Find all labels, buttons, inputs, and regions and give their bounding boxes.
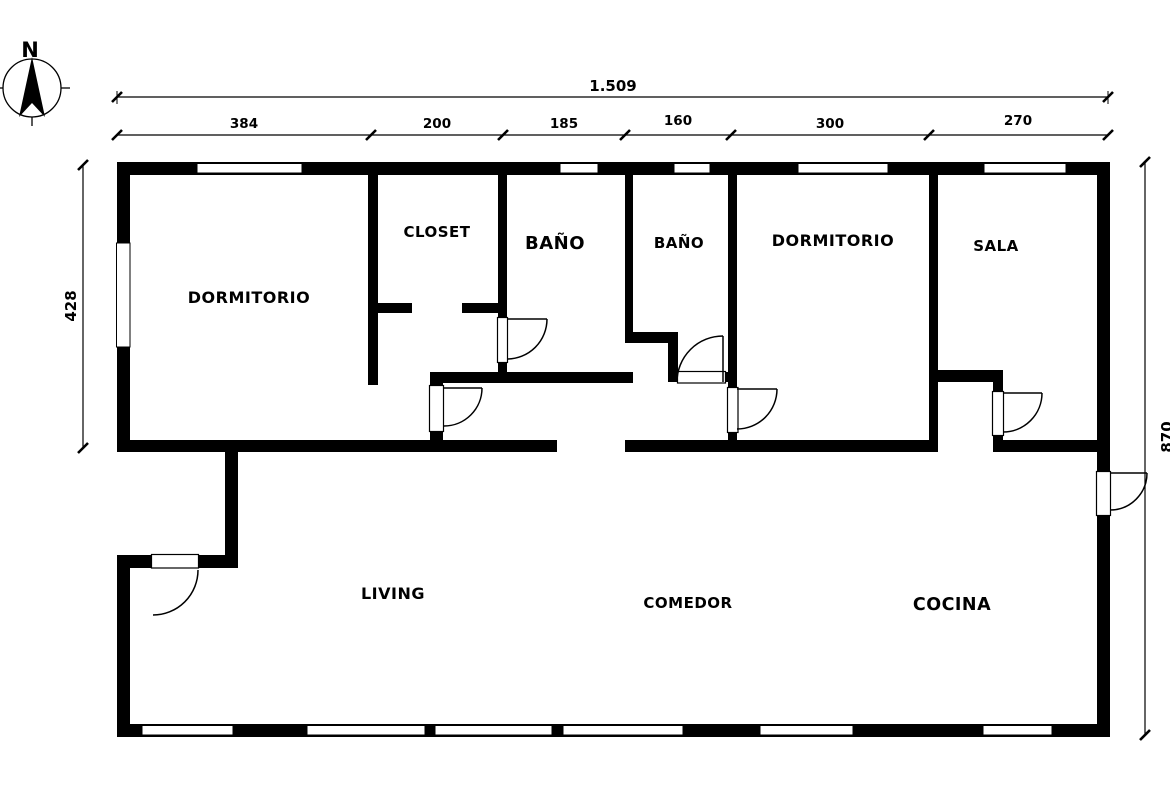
compass-north-indicator: N [0,38,70,126]
window-bottom-3 [435,726,552,736]
dim-left-height-label: 428 [62,290,80,321]
wall-row-divider-east [995,440,1110,452]
room-label-closet: CLOSET [403,223,470,241]
wall-closet-stub-west [368,303,412,313]
room-label-dormitorio-2: DORMITORIO [772,231,894,250]
front-door-leaf [152,555,199,569]
doors [152,318,1148,616]
wall-sala-partition-horizontal [929,370,1003,382]
bano2-door-opening [678,372,726,384]
hall-door-opening [430,386,444,432]
walls [117,162,1110,737]
room-label-bano-1: BAÑO [525,231,585,254]
compass-north-label: N [21,38,39,62]
wall-exterior-west-lower [117,555,130,737]
window-bottom-4 [563,726,683,736]
dim-total-width-label: 1.509 [589,77,636,95]
dim-right-height-label: 870 [1158,421,1170,452]
window-bottom-2 [307,726,425,736]
bano1-door-swing-arc [507,319,547,359]
wall-hall-top [430,372,633,383]
dim-segment-200: 200 [423,116,451,132]
east-door-opening [1097,472,1111,516]
hall-door-swing-arc [444,388,482,426]
room-label-cocina: COCINA [913,595,991,615]
sala-door-opening [993,392,1004,436]
floor-plan: 1.509 384 200 185 160 300 270 428 870 [0,0,1170,785]
room-label-comedor: COMEDOR [643,594,732,612]
bano1-door-opening [498,318,508,363]
wall-entry-notch-vertical [225,440,238,567]
window-top-bano2 [674,164,710,174]
window-top-dormitorio2 [798,164,888,174]
east-door-swing-arc [1110,473,1147,510]
room-label-sala: SALA [973,237,1019,255]
window-top-sala [984,164,1066,174]
wall-dormitorio1-closet [368,175,378,385]
dim-segment-160: 160 [664,113,692,129]
wall-row-divider-west [117,440,557,452]
dim-segment-185: 185 [550,116,578,132]
window-bottom-5 [760,726,853,736]
wall-bano2-jog-horizontal [625,332,678,343]
wall-bano1-bano2-upper [625,175,633,343]
front-door-swing-arc [153,570,198,615]
dormitorio2-door-opening [728,388,739,433]
room-label-bano-2: BAÑO [654,233,704,252]
wall-dormitorio2-sala [929,175,938,452]
sala-door-swing-arc [1003,393,1042,432]
window-bottom-1 [142,726,233,736]
dim-segment-384: 384 [230,116,258,132]
dim-segment-300: 300 [816,116,844,132]
window-west-dormitorio1 [117,243,131,347]
wall-row-divider-middle [625,440,938,452]
room-labels: DORMITORIO CLOSET BAÑO BAÑO DORMITORIO S… [188,223,1019,615]
room-label-dormitorio-1: DORMITORIO [188,288,310,307]
window-top-dormitorio1 [197,164,302,174]
dim-segment-270: 270 [1004,113,1032,129]
compass-north-arrow [19,57,45,117]
window-bottom-6 [983,726,1052,736]
room-label-living: LIVING [361,584,425,603]
window-top-bano1 [560,164,598,174]
floor-plan-canvas: 1.509 384 200 185 160 300 270 428 870 [0,0,1170,785]
dormitorio2-door-swing-arc [737,389,777,429]
